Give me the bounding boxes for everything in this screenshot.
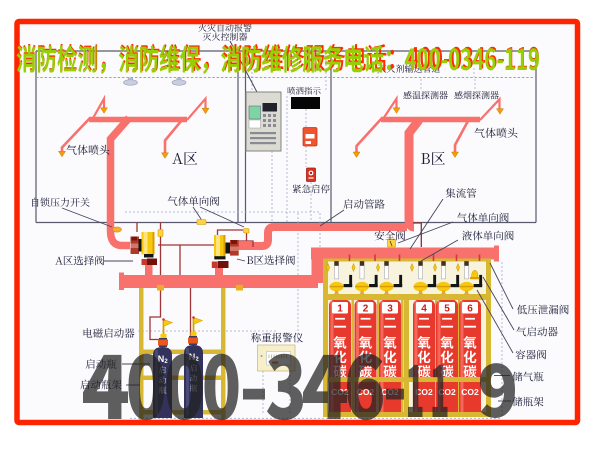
svg-text:2: 2 <box>363 304 369 315</box>
svg-text:5: 5 <box>444 304 450 315</box>
svg-text:4: 4 <box>421 304 427 315</box>
svg-text:CO2: CO2 <box>461 387 479 397</box>
svg-text:1: 1 <box>337 304 343 315</box>
svg-text:3: 3 <box>387 304 393 315</box>
svg-text:6: 6 <box>467 304 473 315</box>
